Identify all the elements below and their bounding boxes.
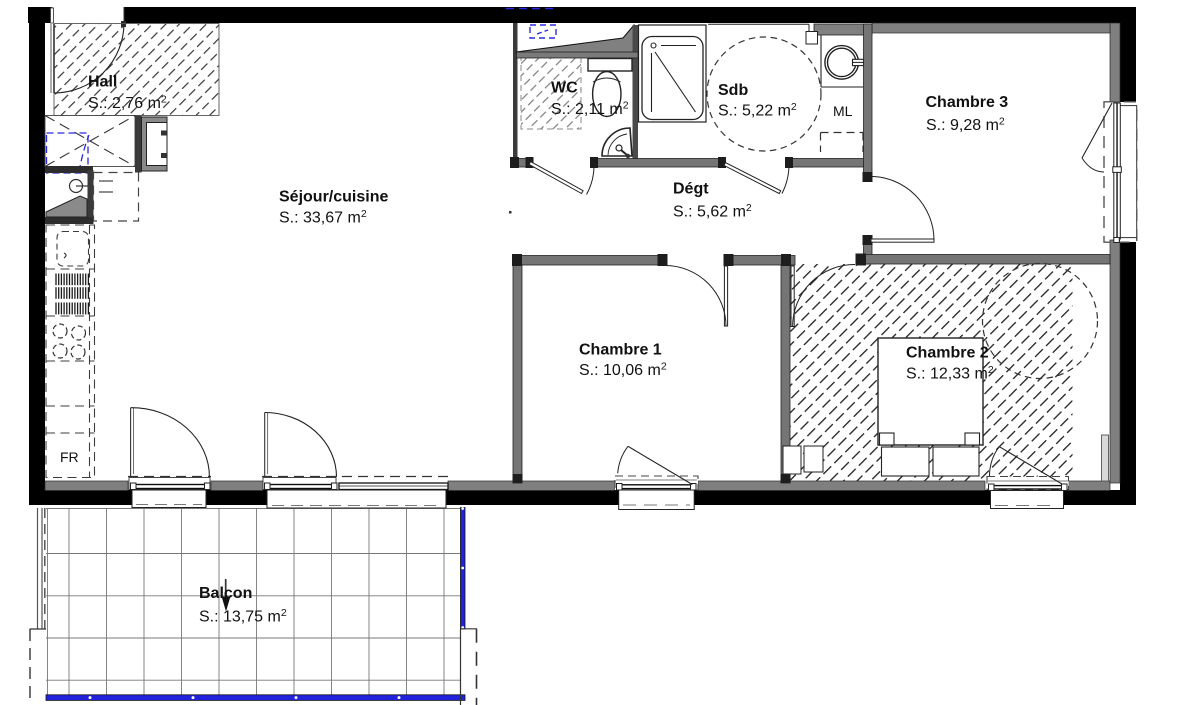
svg-text:Chambre 1: Chambre 1: [579, 342, 662, 359]
svg-text:Séjour/cuisine: Séjour/cuisine: [279, 189, 388, 206]
svg-text:Chambre 3: Chambre 3: [926, 94, 1009, 111]
svg-text:FR: FR: [60, 449, 79, 465]
svg-text:S.: 2,11 m2: S.: 2,11 m2: [551, 99, 629, 118]
svg-text:ML: ML: [833, 103, 853, 119]
svg-text:S.: 10,06 m2: S.: 10,06 m2: [579, 360, 667, 379]
svg-text:S.: 33,67 m2: S.: 33,67 m2: [279, 208, 367, 227]
svg-text:Chambre 2: Chambre 2: [906, 344, 989, 361]
svg-text:WC: WC: [551, 80, 578, 97]
svg-text:Sdb: Sdb: [718, 82, 748, 99]
svg-text:S.: 9,28 m2: S.: 9,28 m2: [926, 116, 1005, 135]
svg-text:S.: 12,33 m2: S.: 12,33 m2: [906, 364, 994, 383]
svg-text:Dégt: Dégt: [673, 181, 709, 198]
svg-text:S.: 5,62 m2: S.: 5,62 m2: [673, 202, 752, 221]
svg-text:Balcon: Balcon: [199, 585, 252, 602]
svg-text:S.: 5,22 m2: S.: 5,22 m2: [718, 101, 797, 120]
svg-text:S.: 13,75 m2: S.: 13,75 m2: [199, 607, 287, 626]
svg-text:Hall: Hall: [88, 74, 117, 91]
svg-text:S.: 2,76 m2: S.: 2,76 m2: [88, 94, 167, 113]
